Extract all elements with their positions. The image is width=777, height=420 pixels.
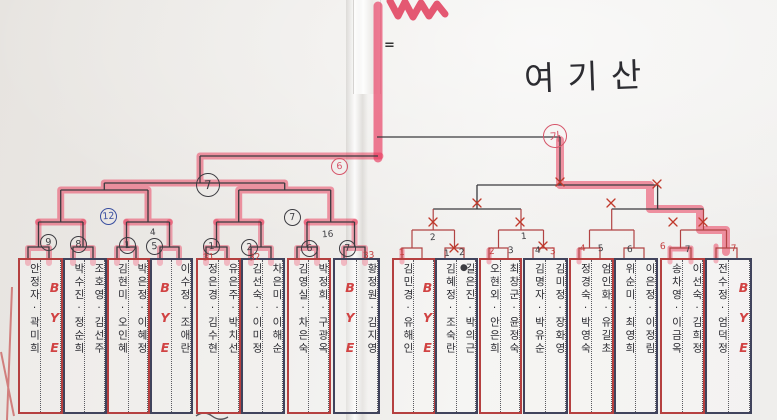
handwritten-number: 33 [363,251,375,262]
match-box-11: 오현외·안은희 최창군·윤정숙 [479,258,522,414]
team-slot: 조호영·김선주 [85,260,105,412]
match-box-3: 김현미·오인혜 박은정·이혜정 [107,258,150,414]
handwritten-number: 3 [550,247,556,257]
page-title: 여기산 [523,48,655,101]
team-slot: 최창군·윤정숙 [501,260,521,412]
handwritten-number: 4 [580,244,586,254]
team-slot: 김명자·박유순 [525,260,546,412]
handwritten-number: 7 [731,244,737,254]
handwritten-number: 2 [430,233,436,243]
handwritten-number: 3 [508,246,514,256]
handwritten-number: ● [460,263,469,274]
handwritten-number: 5 [598,244,604,254]
handwritten-number: 32 [249,253,261,264]
match-box-6: 김선숙·이미정 차은미·이해순 [241,258,285,414]
team-slot: 안정자·곽미희 [20,260,41,412]
equals-mark: = [384,38,396,53]
match-box-10: 김혜정·조숙란 길은진·박의근 [435,258,478,414]
team-slot: 김혜정·조숙란 [437,260,457,412]
handwritten-number: 2 [489,247,495,257]
bracket-photo: 여기산 = 안정자·곽미희 BYE 박수진·정순희 조호영·김선주 김현미·오인… [0,0,777,420]
team-slot: 차은미·이해순 [263,260,283,412]
handwritten-number: 31 [203,253,215,264]
match-box-7: 김영실·차은숙 박정희·구광옥 [287,258,331,414]
team-slot: BYE [41,260,62,412]
team-slot: 김민경·유해인 [394,260,414,412]
match-box-15: 송차영·이금옥 이선숙·김희정 [660,258,705,414]
handwritten-number: 4 [535,246,541,256]
team-slot: 정경숙·박영숙 [571,260,592,412]
match-box-4: BYE 이수정·조애란 [150,258,193,414]
handwritten-number: 1 [444,249,450,259]
team-slot: 김선숙·이미정 [243,260,263,412]
team-slot: 김현미·오인혜 [109,260,129,412]
team-slot: BYE [414,260,434,412]
match-box-14: 위순미·최영희 이은정·이정림 [614,258,658,414]
match-box-9: 김민경·유해인 BYE [392,258,436,414]
handwritten-number: 6 [627,245,633,255]
team-slot: BYE [152,260,172,412]
handwritten-number: 7 [685,245,691,255]
team-slot: BYE [729,260,751,412]
team-slot: 송차영·이금옥 [662,260,683,412]
match-box-2: 박수진·정순희 조호영·김선주 [63,258,107,414]
handwritten-number: 6 [660,242,666,252]
team-slot: 전수정·엄덕정 [707,260,729,412]
marker-scribble [390,1,445,17]
match-box-12: 김명자·박유순 김미정·장화영 [523,258,568,414]
team-slot: 엄인화·유길초 [592,260,613,412]
highlighter-right-path [560,140,726,252]
handwritten-number: 4 [150,228,156,238]
match-box-1: 안정자·곽미희 BYE [18,258,63,414]
team-slot: 길은진·박의근 [457,260,477,412]
team-slot: 박은정·이혜정 [129,260,149,412]
team-slot: 유은주·박치선 [219,260,240,412]
team-slot: 김영실·차은숙 [289,260,309,412]
team-slot: 정은경·김수현 [198,260,219,412]
match-box-5: 정은경·김수현 유은주·박치선 [196,258,241,414]
handwritten-number: 16 [322,230,334,241]
team-slot: BYE [335,260,357,412]
handwritten-number: 2 [459,248,465,258]
team-slot: 위순미·최영희 [616,260,636,412]
team-slot: 오현외·안은희 [481,260,501,412]
team-slot: 황정원·김지영 [357,260,379,412]
team-slot: 이선숙·김희정 [683,260,704,412]
team-slot: 박정희·구광옥 [309,260,329,412]
handwritten-number: 1 [399,248,405,258]
team-slot: 박수진·정순희 [65,260,85,412]
match-box-8: BYE 황정원·김지영 [333,258,380,414]
match-box-13: 정경숙·박영숙 엄인화·유길초 [569,258,614,414]
pen-right-bracket [377,137,704,209]
handwritten-number: 1 [521,232,527,242]
match-box-16: 전수정·엄덕정 BYE [705,258,752,414]
team-slot: 이은정·이정림 [636,260,656,412]
team-slot: 이수정·조애란 [172,260,192,412]
team-slot: 김미정·장화영 [546,260,567,412]
redpen-stray-left [1,287,14,420]
